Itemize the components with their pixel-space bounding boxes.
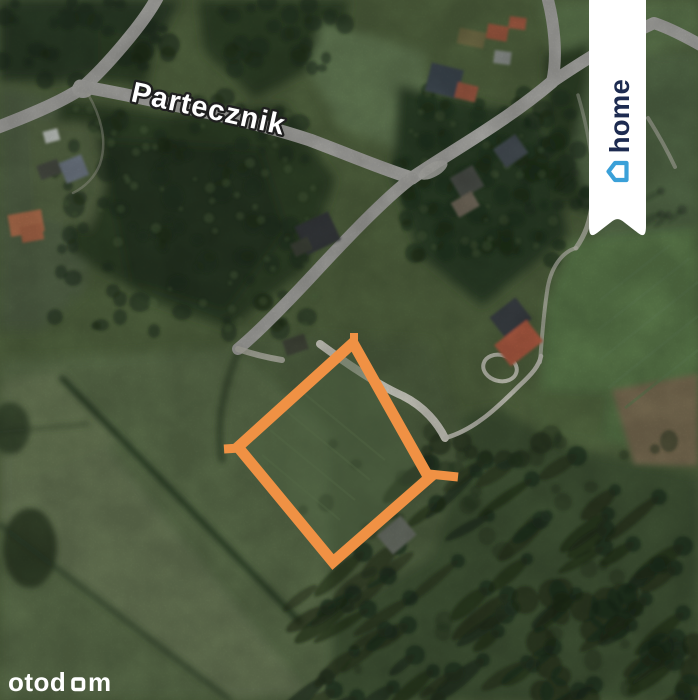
svg-text:otod: otod [8, 667, 66, 697]
svg-text:home: home [604, 79, 635, 153]
svg-text:m: m [88, 667, 111, 697]
